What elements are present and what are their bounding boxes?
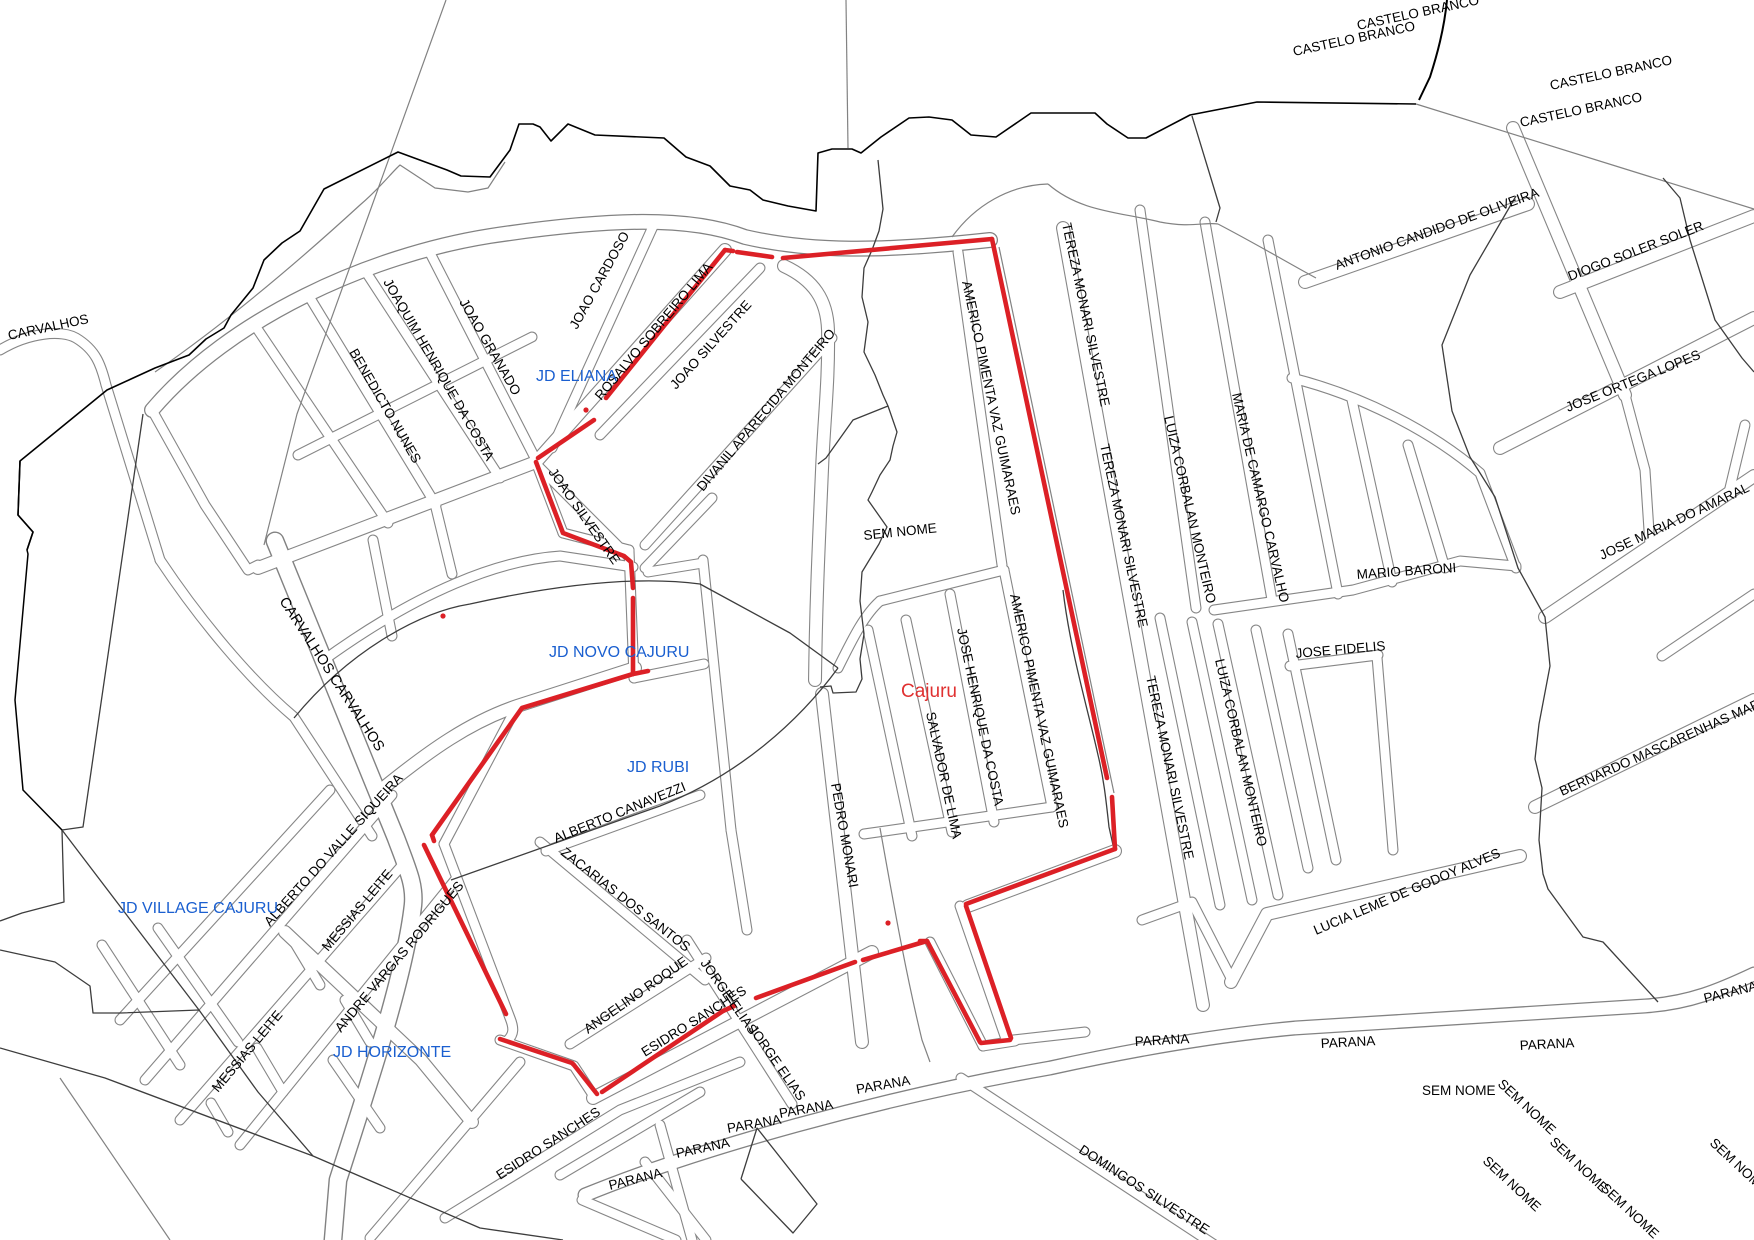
svg-text:JD NOVO CAJURU: JD NOVO CAJURU xyxy=(549,644,689,661)
svg-text:PARANA: PARANA xyxy=(1134,1031,1189,1049)
svg-text:JD RUBI: JD RUBI xyxy=(627,759,689,776)
svg-text:PARANA: PARANA xyxy=(1320,1033,1375,1051)
svg-text:JD VILLAGE CAJURU: JD VILLAGE CAJURU xyxy=(118,900,278,917)
svg-text:PARANA: PARANA xyxy=(1519,1035,1574,1053)
svg-text:SEM NOME: SEM NOME xyxy=(1422,1083,1496,1098)
svg-text:JD HORIZONTE: JD HORIZONTE xyxy=(333,1044,451,1061)
svg-text:JD ELIANA: JD ELIANA xyxy=(536,368,617,385)
svg-text:Cajuru: Cajuru xyxy=(901,681,957,702)
